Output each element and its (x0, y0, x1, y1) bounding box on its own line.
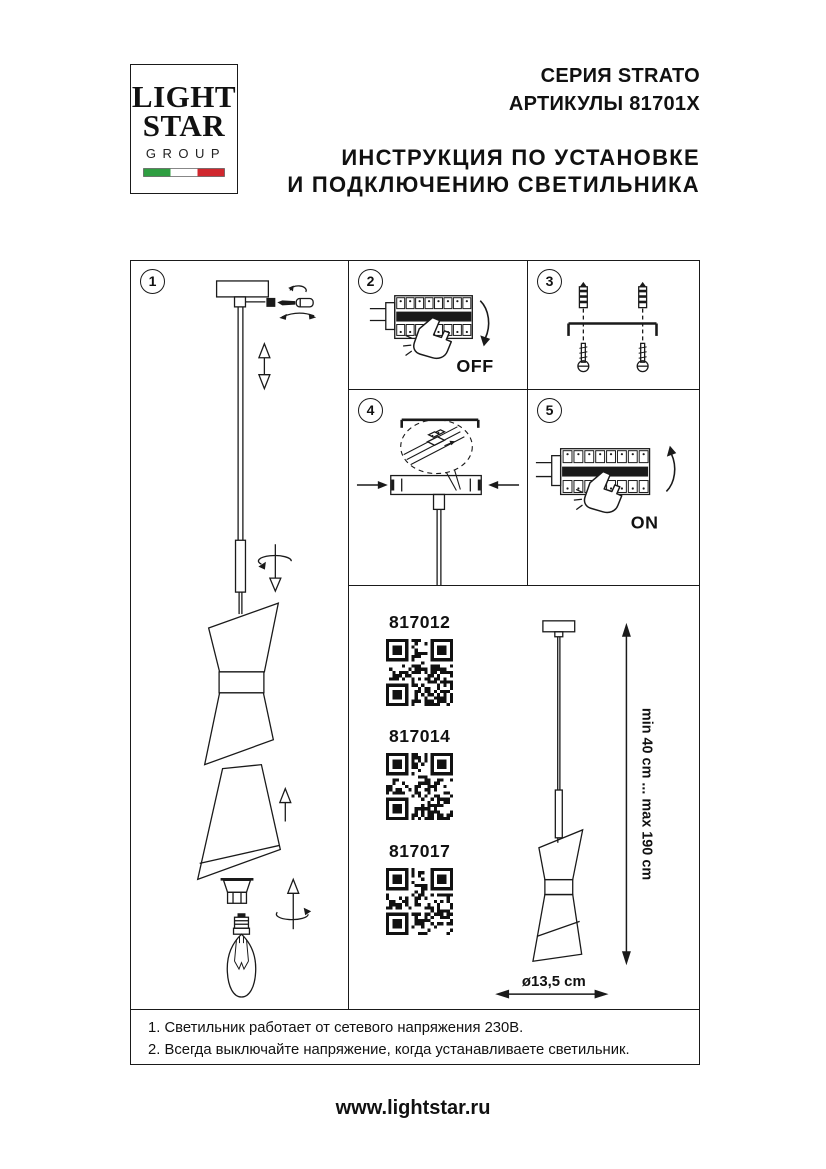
logo-word-star: STAR (131, 111, 237, 140)
screwdriver-icon (277, 286, 316, 320)
bulb-drawing (227, 913, 255, 997)
push-in-arrow-icon (478, 480, 519, 491)
diameter-label: ø13,5 cm (522, 973, 586, 990)
mounting-bracket-drawing (402, 420, 479, 428)
set-screw-icon (266, 298, 275, 307)
down-arrow-icon (480, 301, 490, 347)
step4-panel: 4 (349, 390, 528, 586)
screw-icon (637, 343, 648, 371)
height-range-label: min 40 cm ... max 190 cm (638, 708, 654, 880)
instruction-sheet: LIGHT STAR GROUP СЕРИЯ STRATO АРТИКУЛЫ 8… (0, 0, 826, 1169)
lightstar-logo: LIGHT STAR GROUP (130, 64, 238, 194)
hand-press-icon (402, 315, 453, 360)
diameter-dimension: ø13,5 cm (495, 973, 608, 998)
step-number-badge: 5 (537, 398, 562, 423)
height-dimension: min 40 cm ... max 190 cm (622, 623, 654, 965)
wall-plug-icon (639, 282, 647, 308)
step1-panel: 1 (131, 261, 349, 1009)
screw-icon (578, 343, 589, 371)
up-down-arrow-icon (259, 344, 270, 389)
website-url: www.lightstar.ru (0, 1097, 826, 1120)
instruction-title: ИНСТРУКЦИЯ ПО УСТАНОВКЕ И ПОДКЛЮЧЕНИЮ СВ… (287, 144, 700, 198)
products-panel: 817012 817014 817017 (349, 586, 699, 1009)
step-number-badge: 1 (140, 269, 165, 294)
push-in-arrow-icon (357, 480, 394, 491)
off-label: OFF (456, 356, 493, 376)
logo-word-group: GROUP (131, 146, 237, 161)
note-line: 2. Всегда выключайте напряжение, когда у… (148, 1039, 699, 1061)
articles-title: АРТИКУЛЫ 81701X (287, 90, 700, 118)
canopy-drawing (391, 476, 481, 495)
dimensioned-lamp-drawing: min 40 cm ... max 190 cm ø13,5 cm (349, 586, 699, 1009)
header-titles: СЕРИЯ STRATO АРТИКУЛЫ 81701X ИНСТРУКЦИЯ … (287, 62, 700, 198)
diagram-board: 1 (130, 260, 700, 1065)
step1-assembly-drawing (131, 261, 348, 1009)
step3-panel: 3 (528, 261, 699, 390)
detail-balloon (401, 420, 473, 491)
wall-plug-icon (579, 282, 587, 308)
step-number-badge: 4 (358, 398, 383, 423)
note-line: 1. Светильник работает от сетевого напря… (148, 1017, 699, 1039)
step-number-badge: 3 (537, 269, 562, 294)
logo-word-light: LIGHT (131, 82, 237, 111)
instruction-title-line1: ИНСТРУКЦИЯ ПО УСТАНОВКЕ (287, 144, 700, 171)
socket-adapter-drawing (221, 879, 254, 903)
on-label: ON (631, 512, 659, 532)
italian-flag-icon (143, 168, 225, 177)
up-arrow-icon (666, 446, 676, 492)
upper-shade-drawing (205, 603, 279, 765)
series-title: СЕРИЯ STRATO (287, 62, 700, 90)
safety-notes: 1. Светильник работает от сетевого напря… (131, 1009, 699, 1064)
step-number-badge: 2 (358, 269, 383, 294)
lower-shade-drawing (198, 765, 281, 880)
mounting-bracket-drawing (569, 324, 657, 336)
rotate-arrow-icon (276, 879, 311, 929)
up-arrow-icon (280, 789, 291, 822)
rotate-arrow-icon (258, 544, 291, 591)
step2-panel: 2 (349, 261, 528, 390)
pendant-lamp-drawing (533, 621, 583, 961)
instruction-title-line2: И ПОДКЛЮЧЕНИЮ СВЕТИЛЬНИКА (287, 171, 700, 198)
step5-panel: 5 (528, 390, 699, 586)
rod-drawing (434, 494, 445, 585)
